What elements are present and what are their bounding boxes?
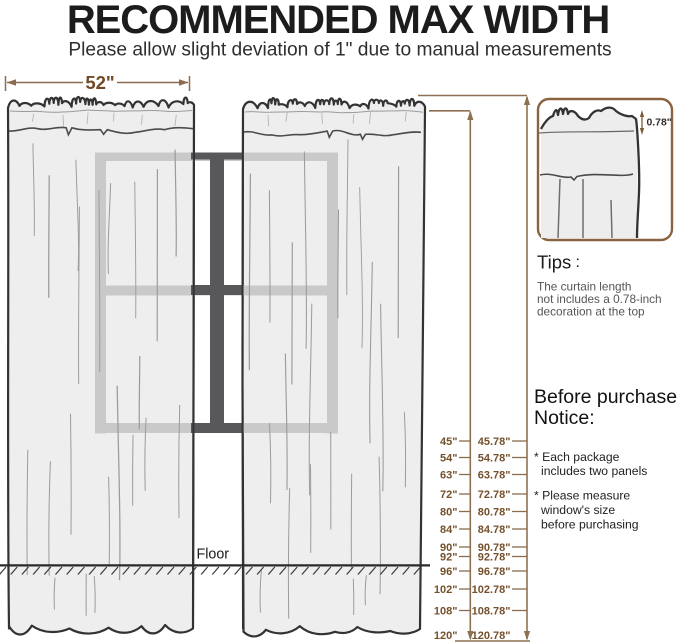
svg-text:Before purchase: Before purchase — [534, 386, 677, 408]
svg-text:80.78": 80.78" — [478, 507, 511, 519]
svg-text:54.78": 54.78" — [478, 453, 511, 465]
svg-text:* Please measure: * Please measure — [534, 489, 630, 503]
svg-text:Please allow slight deviation: Please allow slight deviation of 1" due … — [68, 40, 611, 61]
svg-text:52": 52" — [85, 72, 114, 93]
svg-text:80": 80" — [440, 507, 457, 519]
svg-text:84": 84" — [440, 524, 457, 536]
svg-text:63": 63" — [440, 470, 457, 482]
svg-text:120": 120" — [434, 630, 458, 642]
svg-text:96": 96" — [440, 566, 457, 578]
svg-text:54": 54" — [440, 453, 457, 465]
svg-text:72.78": 72.78" — [478, 489, 511, 501]
svg-text:Tips: Tips — [537, 252, 571, 273]
svg-text:120.78": 120.78" — [472, 630, 511, 642]
svg-text:45": 45" — [440, 436, 457, 448]
svg-text:* Each package: * Each package — [534, 450, 620, 464]
svg-text:84.78": 84.78" — [478, 524, 511, 536]
svg-text:92.78": 92.78" — [478, 552, 511, 564]
svg-text:decoration at the top: decoration at the top — [537, 305, 645, 319]
svg-text:102": 102" — [434, 584, 458, 596]
svg-text:0.78": 0.78" — [647, 118, 672, 129]
svg-text:72": 72" — [440, 489, 457, 501]
svg-text:63.78": 63.78" — [478, 470, 511, 482]
svg-text:96.78": 96.78" — [478, 566, 511, 578]
svg-text:before purchasing: before purchasing — [541, 518, 639, 532]
svg-text:Floor: Floor — [197, 547, 230, 563]
svg-text:102.78": 102.78" — [472, 584, 511, 596]
svg-text:108.78": 108.78" — [472, 606, 511, 618]
svg-text:45.78": 45.78" — [478, 436, 511, 448]
svg-text:includes two panels: includes two panels — [541, 464, 647, 478]
svg-text:108": 108" — [434, 606, 458, 618]
svg-text::: : — [576, 254, 580, 271]
svg-text:window's size: window's size — [540, 503, 615, 517]
svg-text:RECOMMENDED MAX WIDTH: RECOMMENDED MAX WIDTH — [67, 0, 609, 42]
svg-text:92": 92" — [440, 552, 457, 564]
svg-text:Notice:: Notice: — [534, 407, 595, 429]
